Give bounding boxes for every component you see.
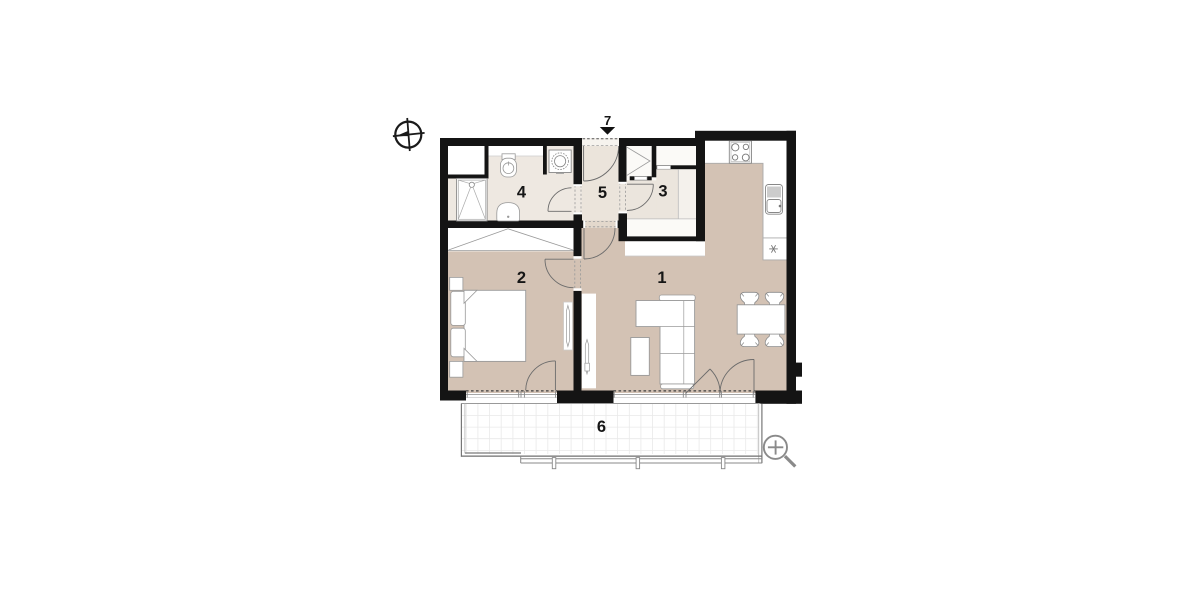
svg-text:2: 2 [517, 269, 526, 287]
svg-text:6: 6 [597, 418, 606, 436]
svg-text:5: 5 [598, 184, 607, 202]
svg-text:7: 7 [604, 113, 611, 128]
svg-text:1: 1 [657, 269, 666, 287]
svg-text:4: 4 [517, 184, 527, 202]
svg-text:3: 3 [658, 183, 667, 201]
